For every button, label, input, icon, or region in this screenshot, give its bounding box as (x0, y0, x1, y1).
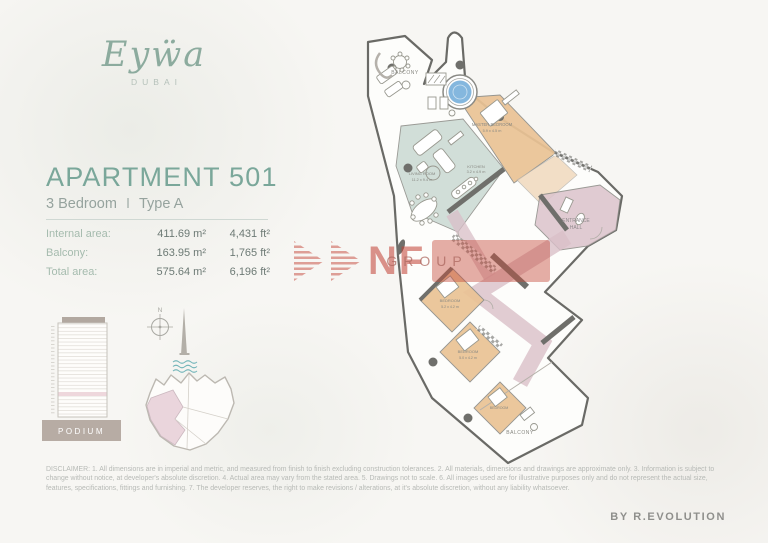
living-room-dims: 11.2 x 9.4 m (412, 178, 433, 182)
kitchen-dims: 3.2 x 4.9 m (467, 170, 486, 174)
area-imperial: 4,431 ft² (206, 228, 270, 242)
water-waves-icon (173, 361, 197, 373)
floor-number-ticks (51, 325, 56, 415)
brand-logo-script: Eyẅa (88, 38, 220, 73)
subtitle-separator: I (126, 196, 130, 212)
balcony-top-label: BALCONY (391, 70, 419, 76)
bedroom-3-label: BEDROOM (458, 349, 479, 354)
tower-elevation-diagram: PODIUM (42, 317, 121, 441)
highlighted-floor (59, 392, 107, 396)
bedroom-4-label: BEDROOM (490, 406, 509, 410)
balcony-bottom-label: BALCONY (506, 430, 534, 436)
area-label: Balcony: (46, 247, 140, 261)
floor-plan: BALCONY MASTER BEDROOM 5.9 x 4.5 m KITCH… (352, 25, 652, 470)
master-bedroom-label: MASTER BEDROOM (472, 122, 513, 127)
entrance-hall-label: ENTRANCE (562, 218, 590, 224)
bedroom-3-dims: 5.0 x 4.2 m (459, 356, 477, 360)
apartment-type: Type A (139, 196, 183, 212)
compass-north-label: N (158, 307, 163, 314)
podium-label: PODIUM (58, 427, 105, 436)
tower-cap (62, 317, 105, 323)
entrance-hall-label: HALL (570, 225, 583, 231)
area-metric: 575.64 m² (140, 266, 206, 280)
tower-floor-lines (59, 324, 107, 416)
table-row: Total area: 575.64 m² 6,196 ft² (46, 266, 270, 280)
master-bedroom-dims: 5.9 x 4.5 m (483, 129, 502, 133)
bedroom-count: 3 Bedroom (46, 196, 117, 212)
watermark-stripes-icon (294, 241, 324, 281)
living-room-label: LIVING ROOM (409, 171, 436, 176)
table-row: Internal area: 411.69 m² 4,431 ft² (46, 228, 270, 242)
developer-credit: BY R.EVOLUTION (610, 511, 726, 523)
key-plan (146, 373, 234, 450)
area-imperial: 1,765 ft² (206, 247, 270, 261)
disclaimer-text: DISCLAIMER: 1. All dimensions are in imp… (46, 465, 726, 493)
bedroom-2-dims: 5.2 x 4.2 m (441, 305, 459, 309)
area-label: Internal area: (46, 228, 140, 242)
burj-khalifa-icon (180, 308, 190, 355)
location-key-graphics: PODIUM N (38, 303, 248, 455)
bedroom-2-label: BEDROOM (440, 298, 461, 303)
brand-city-label: DUBAI (88, 77, 220, 87)
area-label: Total area: (46, 266, 140, 280)
area-imperial: 6,196 ft² (206, 266, 270, 280)
area-metric: 411.69 m² (140, 228, 206, 242)
table-row: Balcony: 163.95 m² 1,765 ft² (46, 247, 270, 261)
brochure-page: Eyẅa DUBAI APARTMENT 501 3 BedroomIType … (0, 0, 768, 543)
area-table: Internal area: 411.69 m² 4,431 ft² Balco… (46, 228, 270, 284)
divider-line (46, 219, 268, 220)
area-metric: 163.95 m² (140, 247, 206, 261)
kitchen-label: KITCHEN (467, 164, 485, 169)
brand-logo: Eyẅa DUBAI (88, 38, 220, 87)
page-title: APARTMENT 501 (46, 162, 278, 193)
apartment-subtitle: 3 BedroomIType A (46, 196, 183, 212)
compass-icon: N (147, 307, 173, 340)
